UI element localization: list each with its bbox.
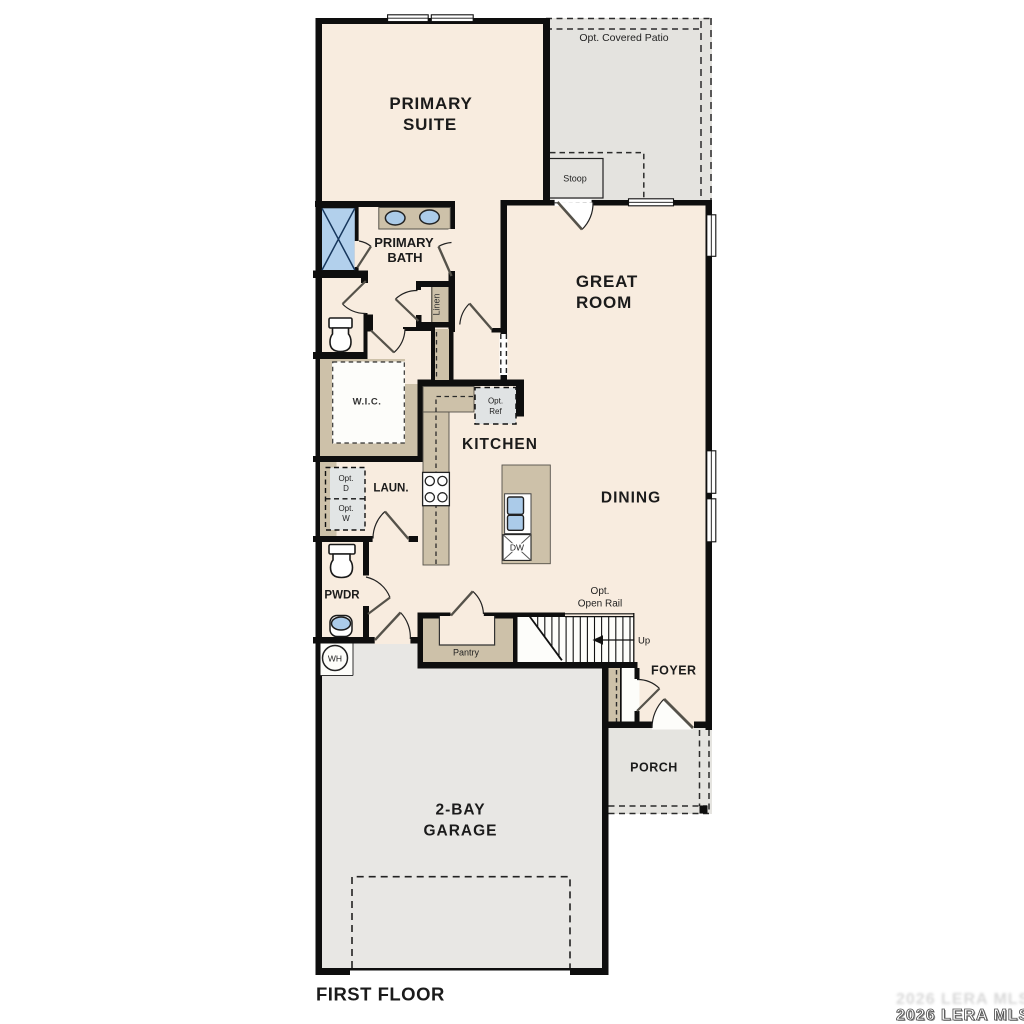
svg-text:PORCH: PORCH bbox=[630, 761, 678, 775]
svg-text:Pantry: Pantry bbox=[453, 648, 480, 658]
svg-text:PRIMARY: PRIMARY bbox=[389, 94, 472, 113]
svg-text:PWDR: PWDR bbox=[324, 590, 360, 602]
svg-text:DW: DW bbox=[510, 543, 524, 553]
svg-text:D: D bbox=[343, 484, 349, 493]
svg-text:GREAT: GREAT bbox=[576, 272, 638, 291]
svg-text:Open Rail: Open Rail bbox=[578, 599, 622, 610]
svg-text:GARAGE: GARAGE bbox=[423, 823, 497, 840]
svg-text:FIRST FLOOR: FIRST FLOOR bbox=[316, 984, 445, 1005]
svg-text:Opt.: Opt. bbox=[338, 504, 353, 513]
svg-text:LAUN.: LAUN. bbox=[373, 483, 408, 495]
svg-text:Opt.: Opt. bbox=[488, 397, 503, 406]
svg-text:2026 LERA MLS: 2026 LERA MLS bbox=[896, 991, 1024, 1008]
svg-text:Stoop: Stoop bbox=[563, 174, 587, 184]
svg-text:Linen: Linen bbox=[432, 293, 442, 315]
svg-text:SUITE: SUITE bbox=[403, 115, 457, 134]
svg-text:KITCHEN: KITCHEN bbox=[462, 436, 538, 453]
svg-text:2-BAY: 2-BAY bbox=[435, 802, 485, 819]
svg-text:W.I.C.: W.I.C. bbox=[353, 397, 382, 408]
svg-text:PRIMARY: PRIMARY bbox=[374, 235, 434, 250]
svg-text:W: W bbox=[342, 514, 350, 523]
svg-text:2026 LERA MLS: 2026 LERA MLS bbox=[896, 1007, 1024, 1024]
svg-text:Ref: Ref bbox=[489, 407, 502, 416]
svg-text:DINING: DINING bbox=[601, 490, 661, 507]
svg-text:Opt.: Opt. bbox=[338, 474, 353, 483]
svg-text:Opt. Covered Patio: Opt. Covered Patio bbox=[579, 32, 668, 44]
svg-text:FOYER: FOYER bbox=[651, 664, 697, 678]
svg-text:ROOM: ROOM bbox=[576, 293, 632, 312]
svg-text:Up: Up bbox=[638, 636, 650, 647]
svg-text:WH: WH bbox=[328, 654, 342, 664]
svg-text:Opt.: Opt. bbox=[591, 586, 610, 597]
svg-text:BATH: BATH bbox=[387, 250, 422, 265]
